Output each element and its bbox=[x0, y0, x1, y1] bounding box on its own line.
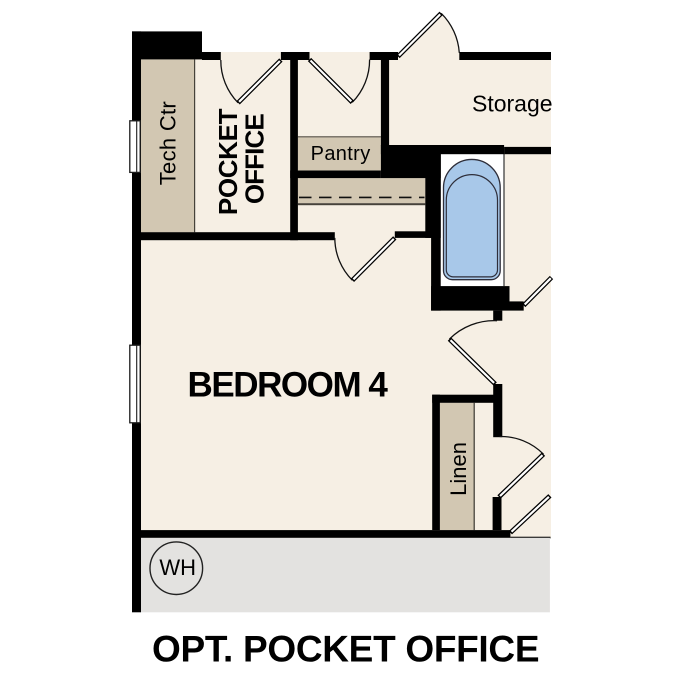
svg-text:WH: WH bbox=[159, 555, 196, 580]
svg-text:OFFICE: OFFICE bbox=[240, 114, 270, 204]
svg-text:Storage: Storage bbox=[472, 90, 553, 116]
svg-text:Pantry: Pantry bbox=[311, 143, 371, 165]
svg-text:Linen: Linen bbox=[446, 442, 471, 496]
svg-text:Tech Ctr: Tech Ctr bbox=[156, 101, 181, 185]
svg-text:OPT. POCKET OFFICE: OPT. POCKET OFFICE bbox=[152, 629, 539, 670]
svg-text:BEDROOM 4: BEDROOM 4 bbox=[188, 366, 389, 405]
svg-text:POCKET: POCKET bbox=[213, 108, 243, 215]
